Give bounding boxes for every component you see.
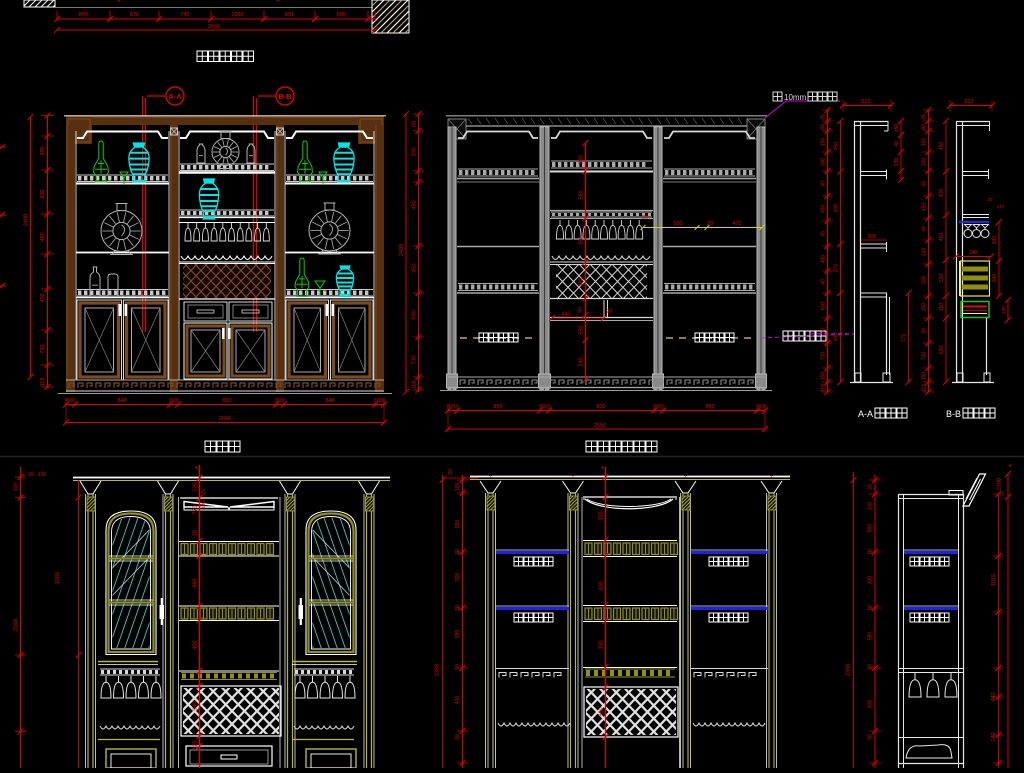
svg-text:+: + bbox=[276, 0, 280, 5]
svg-text:+: + bbox=[571, 474, 575, 480]
svg-text:500: 500 bbox=[868, 234, 877, 240]
svg-text:50: 50 bbox=[455, 734, 461, 740]
svg-text:20: 20 bbox=[707, 221, 713, 227]
svg-text:118: 118 bbox=[821, 384, 827, 392]
svg-text:300: 300 bbox=[40, 146, 46, 155]
svg-text:10: 10 bbox=[455, 549, 461, 555]
svg-text:450: 450 bbox=[939, 142, 945, 151]
svg-text:450: 450 bbox=[821, 255, 827, 264]
svg-text:550: 550 bbox=[579, 325, 585, 334]
svg-text:580: 580 bbox=[868, 632, 874, 641]
svg-text:100: 100 bbox=[38, 472, 47, 478]
svg-text:590: 590 bbox=[579, 235, 585, 244]
svg-text:100: 100 bbox=[868, 502, 874, 511]
svg-text:20: 20 bbox=[28, 472, 34, 478]
svg-text:300: 300 bbox=[821, 158, 827, 167]
svg-text:600: 600 bbox=[821, 302, 827, 311]
svg-text:450: 450 bbox=[922, 203, 928, 212]
svg-text:118: 118 bbox=[40, 378, 46, 387]
svg-text:848: 848 bbox=[325, 398, 334, 404]
svg-text:300: 300 bbox=[412, 147, 418, 156]
svg-text:580: 580 bbox=[868, 524, 874, 533]
svg-text:150: 150 bbox=[922, 303, 928, 312]
svg-text:150: 150 bbox=[939, 303, 945, 312]
svg-text:118: 118 bbox=[412, 381, 418, 390]
svg-text:130: 130 bbox=[992, 236, 998, 245]
svg-text:850: 850 bbox=[493, 404, 502, 410]
svg-text:2400: 2400 bbox=[24, 214, 30, 226]
svg-text:100: 100 bbox=[14, 483, 20, 492]
svg-text:10mm: 10mm bbox=[784, 93, 807, 102]
svg-text:2400: 2400 bbox=[399, 244, 405, 256]
svg-text:30: 30 bbox=[821, 328, 827, 334]
svg-text:440: 440 bbox=[991, 692, 997, 701]
svg-text:100: 100 bbox=[201, 501, 207, 510]
svg-text:150: 150 bbox=[894, 124, 900, 133]
svg-text:130: 130 bbox=[894, 158, 900, 167]
svg-text:60: 60 bbox=[541, 404, 547, 410]
svg-text:440: 440 bbox=[561, 312, 570, 318]
svg-text:60: 60 bbox=[377, 398, 383, 404]
svg-text:50: 50 bbox=[455, 664, 461, 670]
svg-text:330: 330 bbox=[939, 274, 945, 283]
svg-text:60: 60 bbox=[277, 398, 283, 404]
svg-text:500: 500 bbox=[673, 221, 682, 227]
svg-text:150: 150 bbox=[922, 138, 928, 147]
svg-text:580: 580 bbox=[455, 630, 461, 639]
svg-text:770: 770 bbox=[193, 505, 199, 514]
svg-text:60: 60 bbox=[758, 404, 764, 410]
svg-text:20: 20 bbox=[868, 484, 874, 490]
svg-text:450: 450 bbox=[412, 200, 418, 209]
svg-text:35: 35 bbox=[922, 114, 928, 120]
svg-text:450: 450 bbox=[579, 277, 585, 286]
svg-text:240: 240 bbox=[969, 250, 978, 256]
svg-text:50: 50 bbox=[868, 734, 874, 740]
svg-text:2358: 2358 bbox=[435, 664, 441, 676]
svg-text:20: 20 bbox=[201, 489, 207, 495]
svg-text:10: 10 bbox=[455, 605, 461, 611]
svg-text:775: 775 bbox=[902, 334, 908, 343]
svg-text:10: 10 bbox=[868, 549, 874, 555]
svg-text:118: 118 bbox=[922, 384, 928, 392]
svg-text:+: + bbox=[194, 465, 198, 472]
svg-text:2556: 2556 bbox=[208, 24, 220, 30]
svg-text:886: 886 bbox=[337, 12, 346, 18]
svg-text:300: 300 bbox=[922, 276, 928, 285]
svg-text:630: 630 bbox=[939, 346, 945, 355]
svg-text:90: 90 bbox=[578, 307, 584, 313]
svg-text:+: + bbox=[600, 465, 604, 472]
svg-text:60: 60 bbox=[67, 398, 73, 404]
svg-text:*: * bbox=[1008, 463, 1011, 472]
svg-text:1015: 1015 bbox=[991, 574, 997, 586]
svg-text:850: 850 bbox=[705, 404, 714, 410]
svg-text:450: 450 bbox=[412, 263, 418, 272]
svg-text:400: 400 bbox=[455, 696, 461, 705]
svg-text:450: 450 bbox=[834, 142, 840, 151]
svg-text:800: 800 bbox=[596, 404, 605, 410]
svg-text:130: 130 bbox=[1001, 306, 1006, 314]
svg-text:800: 800 bbox=[599, 581, 605, 590]
svg-text:80: 80 bbox=[412, 121, 418, 127]
svg-text:400: 400 bbox=[939, 189, 945, 198]
svg-text:+: + bbox=[117, 0, 121, 5]
svg-text:730: 730 bbox=[922, 352, 928, 361]
svg-text:+: + bbox=[489, 474, 493, 480]
svg-text:150: 150 bbox=[821, 372, 827, 381]
svg-text:+: + bbox=[684, 474, 688, 480]
svg-text:35: 35 bbox=[821, 114, 827, 120]
svg-text:350: 350 bbox=[599, 511, 605, 520]
svg-text:240: 240 bbox=[922, 248, 928, 257]
svg-text:B-B: B-B bbox=[278, 92, 292, 101]
svg-text:550: 550 bbox=[455, 573, 461, 582]
svg-text:1002: 1002 bbox=[231, 12, 243, 18]
svg-text:90: 90 bbox=[606, 309, 612, 315]
svg-text:600: 600 bbox=[40, 189, 46, 198]
svg-text:550: 550 bbox=[455, 520, 461, 529]
svg-text:450: 450 bbox=[40, 232, 46, 241]
svg-text:B-B: B-B bbox=[946, 409, 961, 419]
svg-text:960: 960 bbox=[599, 707, 605, 716]
svg-text:240: 240 bbox=[579, 357, 585, 366]
svg-text:40: 40 bbox=[922, 226, 928, 232]
svg-text:20: 20 bbox=[448, 469, 454, 475]
svg-text:60: 60 bbox=[655, 404, 661, 410]
svg-text:140: 140 bbox=[991, 732, 997, 741]
svg-text:860: 860 bbox=[222, 398, 231, 404]
svg-text:300: 300 bbox=[922, 158, 928, 167]
svg-text:10: 10 bbox=[868, 605, 874, 611]
svg-text:2358: 2358 bbox=[14, 619, 20, 631]
svg-text:330: 330 bbox=[868, 576, 874, 585]
svg-text:450: 450 bbox=[939, 233, 945, 242]
svg-text:980: 980 bbox=[193, 578, 199, 587]
svg-text:470: 470 bbox=[732, 221, 741, 227]
svg-text:730: 730 bbox=[412, 355, 418, 364]
svg-text:60: 60 bbox=[449, 404, 455, 410]
svg-text:749: 749 bbox=[180, 12, 189, 18]
svg-text:400: 400 bbox=[868, 700, 874, 709]
svg-text:380: 380 bbox=[579, 155, 585, 164]
svg-text:40: 40 bbox=[894, 141, 900, 147]
svg-text:60: 60 bbox=[171, 398, 177, 404]
svg-text:940: 940 bbox=[193, 701, 199, 710]
svg-text:560: 560 bbox=[579, 190, 585, 199]
svg-text:30: 30 bbox=[922, 328, 928, 334]
svg-text:2100: 2100 bbox=[997, 478, 1003, 490]
svg-text:150: 150 bbox=[821, 138, 827, 147]
svg-text:400: 400 bbox=[834, 204, 840, 213]
svg-text:450: 450 bbox=[821, 205, 827, 214]
svg-text:2358: 2358 bbox=[846, 664, 852, 676]
svg-text:40: 40 bbox=[821, 181, 827, 187]
svg-text:1084: 1084 bbox=[55, 572, 61, 584]
svg-text:600: 600 bbox=[412, 310, 418, 319]
svg-text:450: 450 bbox=[40, 293, 46, 302]
svg-text:50: 50 bbox=[868, 664, 874, 670]
svg-text:100: 100 bbox=[455, 483, 461, 492]
svg-text:848: 848 bbox=[117, 398, 126, 404]
svg-text:80: 80 bbox=[821, 124, 827, 130]
svg-text:20: 20 bbox=[642, 215, 648, 221]
svg-text:510: 510 bbox=[861, 99, 870, 105]
svg-text:40: 40 bbox=[922, 181, 928, 187]
svg-text:890: 890 bbox=[79, 12, 88, 18]
svg-text:100: 100 bbox=[193, 482, 199, 491]
svg-text:240: 240 bbox=[992, 274, 998, 283]
svg-text:140: 140 bbox=[996, 204, 1004, 209]
svg-text:730: 730 bbox=[40, 344, 46, 353]
svg-text:2556: 2556 bbox=[594, 423, 606, 429]
svg-text:350: 350 bbox=[599, 640, 605, 649]
svg-text:400: 400 bbox=[193, 640, 199, 649]
svg-text:40: 40 bbox=[821, 279, 827, 285]
svg-text:150: 150 bbox=[922, 372, 928, 381]
svg-text:80: 80 bbox=[922, 124, 928, 130]
svg-text:2556: 2556 bbox=[219, 416, 231, 422]
svg-text:40: 40 bbox=[821, 231, 827, 237]
svg-text:20: 20 bbox=[193, 530, 199, 536]
svg-text:+: + bbox=[770, 474, 774, 480]
svg-text:A-A: A-A bbox=[858, 409, 873, 419]
svg-text:35: 35 bbox=[987, 197, 993, 202]
svg-text:730: 730 bbox=[821, 352, 827, 361]
svg-text:120: 120 bbox=[193, 740, 199, 749]
svg-text:876: 876 bbox=[130, 12, 139, 18]
svg-text:891: 891 bbox=[285, 12, 294, 18]
svg-text:510: 510 bbox=[964, 99, 973, 105]
svg-text:A-A: A-A bbox=[168, 92, 182, 101]
svg-text:270: 270 bbox=[834, 264, 840, 273]
